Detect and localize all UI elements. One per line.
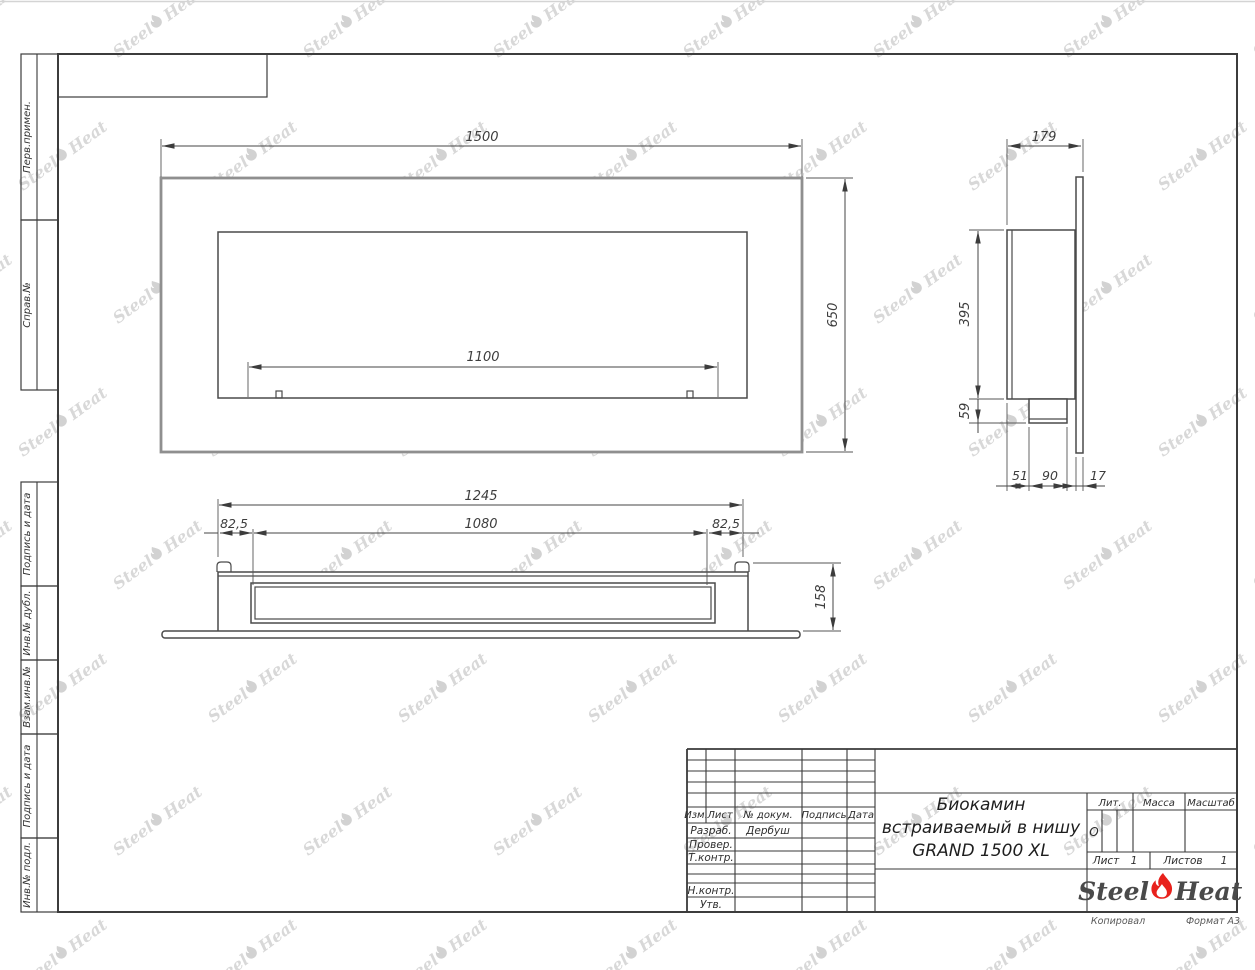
doc-title-line3: GRAND 1500 XL [912,841,1050,861]
watermark-instance [109,516,206,594]
watermark-instance [1249,782,1255,860]
doc-title-line1: Биокамин [937,795,1026,815]
tb-row-approved: Утв. [700,899,722,911]
dim-side-panel: 17 [1090,468,1106,483]
dim-side-body-height: 395 [958,302,973,327]
side-body [1007,230,1075,399]
strip-label-perv: Перв.примен. [22,101,33,173]
tb-row-developed: Разраб. [690,825,731,837]
logo-heat-text: Heat [1174,877,1243,906]
logo-steel-text: Steel [1078,877,1149,906]
tb-sheet-label: Лист [1092,855,1120,867]
dim-front-burner: 1100 [466,350,499,365]
watermark-instance [869,250,966,328]
watermark-instance [299,0,396,61]
side-front-panel [1076,177,1083,453]
watermark-instance [774,915,871,970]
watermark-instance [394,649,491,727]
strip-label-vzam: Взам.инв.№ [22,666,33,728]
strip-label-podp1: Подпись и дата [22,493,33,576]
dim-top-niche: 1245 [464,489,497,504]
footer-format: Формат А3 [1186,916,1240,927]
watermark-instance [964,649,1061,727]
dim-top-slot: 1080 [464,517,497,532]
watermark-instance [109,782,206,860]
dim-front-height: 650 [826,303,841,328]
strip-label-podl: Инв.№ подл. [22,842,33,908]
dim-front-width: 1500 [465,130,498,145]
title-block: Изм. Лист № докум. Подпись Дата Разраб. … [684,749,1242,927]
tb-row-ncontrol: Н.контр. [688,885,735,897]
watermark-instance [1249,516,1255,594]
watermark-instance [204,915,301,970]
technical-drawing: Steel Heat Перв.примен. Справ.№ Подпись … [0,0,1255,970]
watermark-instance [489,0,586,61]
watermark-instance [0,782,16,860]
tb-col-sign: Подпись [802,810,847,821]
drawing-sheet: Steel Heat Перв.примен. Справ.№ Подпись … [0,0,1255,970]
dim-side-offset: 51 [1012,468,1028,483]
watermark-instance [394,915,491,970]
watermark-instance [869,0,966,61]
watermark-instance [964,915,1061,970]
front-niche-opening [218,232,747,398]
strip-label-sprav: Справ.№ [22,282,33,327]
dim-top-left-margin: 82,5 [220,516,248,531]
tb-lit-label: Лит. [1097,798,1121,809]
watermark-instance [0,250,16,328]
watermark-instance [14,383,111,461]
top-left-tab [217,562,231,572]
doc-title-line2: встраиваемый в нишу [882,818,1081,838]
dim-side-tray-height: 59 [958,403,973,420]
tb-sheets-value: 1 [1221,855,1228,867]
tb-col-doc: № докум. [742,810,792,821]
watermark-instance [1249,250,1255,328]
watermark-instance [1249,0,1255,61]
tb-developer-name: Дербуш [745,825,790,837]
dim-top-right-margin: 82,5 [712,516,740,531]
top-right-tab [735,562,749,572]
steelheat-logo: Steel Heat [1078,873,1243,906]
front-view [161,178,802,452]
watermark-instance [14,915,111,970]
watermark-instance [964,117,1061,195]
strip-label-dubl: Инв.№ дубл. [21,590,33,655]
top-view [162,562,800,638]
tb-row-checked: Провер. [689,839,733,851]
tb-col-izm: Изм. [684,810,708,821]
tb-sheets-label: Листов [1162,855,1202,867]
tb-sheet-value: 1 [1131,855,1138,867]
watermark-instance [0,516,16,594]
watermark-instance [584,915,681,970]
tb-col-list: Лист [706,810,734,821]
watermark-instance [204,649,301,727]
watermark-instance [1059,516,1156,594]
top-burner-slot [251,583,715,623]
dim-top-depth: 158 [814,585,829,610]
tb-mass-label: Масса [1143,798,1175,809]
strip-label-podp2: Подпись и дата [22,745,33,828]
watermark-instance [299,782,396,860]
tb-lit-value: О [1089,825,1098,839]
watermark-instance [489,782,586,860]
watermark-instance [679,0,776,61]
watermark-instance [0,0,16,61]
tb-scale-label: Масштаб [1187,797,1235,809]
watermark-instance [584,649,681,727]
watermark-instance [774,649,871,727]
watermark-instance [109,0,206,61]
top-left-designation-box [58,54,267,97]
tb-col-date: Дата [847,810,874,821]
tb-row-tcontrol: Т.контр. [688,852,734,864]
top-front-panel-edge [162,631,800,638]
dim-side-tray-width: 90 [1042,468,1058,483]
dim-side-depth: 179 [1032,130,1057,145]
footer-copied: Копировал [1091,916,1145,927]
watermark-instance [1059,0,1156,61]
watermark-instance [869,516,966,594]
